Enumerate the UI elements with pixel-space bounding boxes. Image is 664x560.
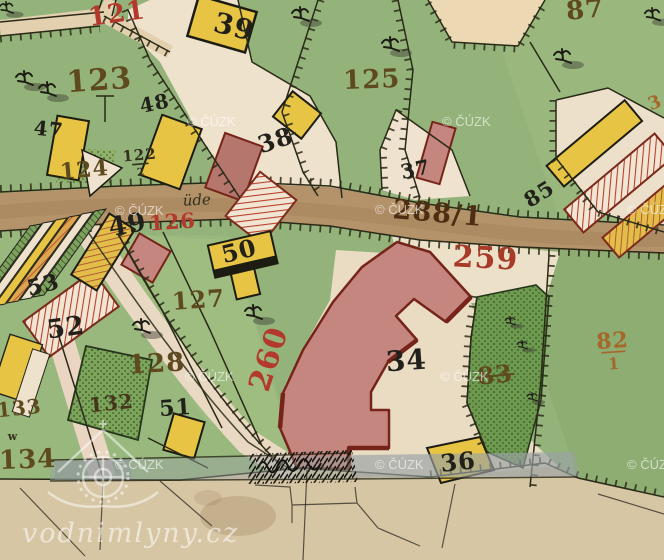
parcel-label-259: 259: [452, 239, 519, 277]
cuzk-watermark: © ČÚZK: [375, 202, 424, 217]
svg-text:123: 123: [65, 61, 133, 100]
svg-text:52: 52: [45, 311, 87, 346]
cuzk-watermark: © ČÚZK: [440, 369, 489, 384]
svg-text:34: 34: [385, 343, 428, 379]
parcel-label-w: w: [7, 430, 18, 443]
parcel-label-üde: üde: [182, 190, 211, 209]
stream-bushes: [248, 450, 358, 484]
svg-text:134: 134: [0, 444, 57, 476]
svg-text:36: 36: [439, 445, 477, 478]
parcel-label-47: 47: [33, 116, 65, 143]
cuzk-watermark: © ČÚZK: [627, 457, 664, 472]
site-watermark-text: vodnimlyny.cz: [22, 518, 239, 549]
svg-text:133: 133: [0, 394, 43, 423]
svg-text:w: w: [7, 430, 18, 443]
parcel-label-128: 128: [127, 348, 186, 381]
cuzk-watermark: © ČÚZK: [185, 369, 234, 384]
cuzk-watermark: © ČÚZK: [375, 457, 424, 472]
parcel-label-51: 51: [158, 394, 192, 422]
parcel-label-87: 87: [565, 0, 606, 27]
svg-text:47: 47: [33, 116, 65, 143]
svg-text:132: 132: [88, 389, 135, 418]
parcel-label-125: 125: [343, 64, 401, 96]
parcel-label-134: 134: [0, 444, 57, 476]
cuzk-watermark: © ČÚZK: [187, 114, 236, 129]
parcel-label-132: 132: [88, 389, 135, 418]
svg-text:2: 2: [136, 165, 146, 179]
svg-text:259: 259: [452, 239, 519, 277]
cuzk-watermark: © ČÚZK: [627, 202, 664, 217]
parcel-label-36: 36: [439, 445, 477, 478]
svg-text:87: 87: [565, 0, 606, 27]
svg-text:51: 51: [158, 394, 192, 422]
svg-text:üde: üde: [182, 190, 211, 209]
parcel-label-133: 133: [0, 394, 43, 423]
svg-text:122: 122: [122, 145, 158, 166]
parcel-label-124: 124: [59, 155, 110, 185]
svg-text:127: 127: [171, 283, 226, 316]
svg-text:128: 128: [127, 348, 186, 381]
svg-text:1: 1: [607, 354, 620, 374]
cuzk-watermark: © ČÚZK: [442, 114, 491, 129]
parcel-label-123: 123: [65, 61, 133, 100]
parcel-label-52: 52: [45, 311, 87, 346]
cadastral-map: 12139871231254838471222124üde12649288/12…: [0, 0, 664, 560]
cuzk-watermark: © ČÚZK: [115, 203, 164, 218]
svg-text:124: 124: [59, 155, 110, 185]
parcel-label-127: 127: [171, 283, 226, 316]
svg-text:125: 125: [343, 64, 401, 96]
map-viewport[interactable]: 12139871231254838471222124üde12649288/12…: [0, 0, 664, 560]
parcel-label-34: 34: [385, 343, 428, 379]
